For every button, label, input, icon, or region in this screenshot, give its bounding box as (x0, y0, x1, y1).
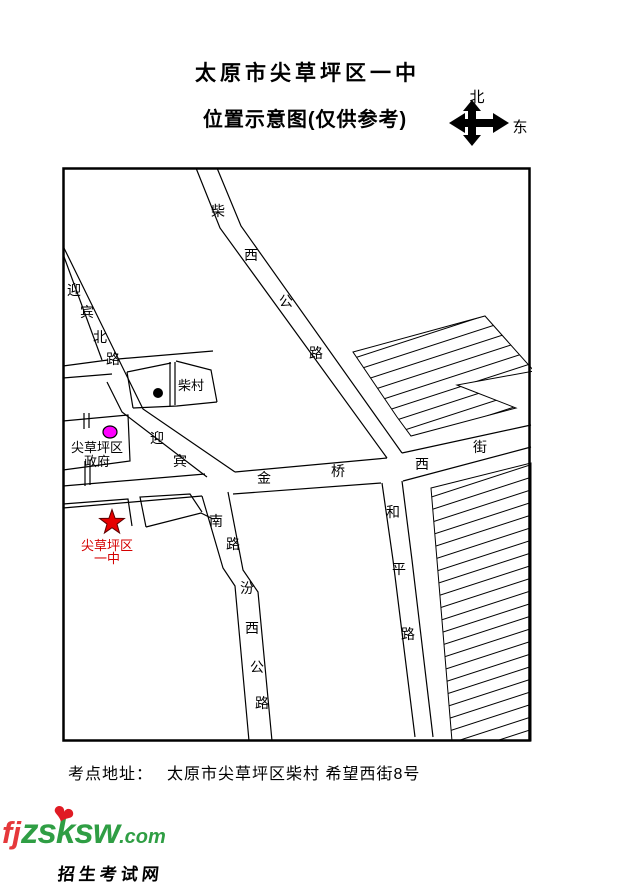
village-dot-marker (153, 388, 163, 398)
school-label-line2: 一中 (94, 551, 120, 566)
government-dot-marker (103, 426, 117, 438)
road-label-char: 迎 (150, 430, 164, 446)
road-west-spur (63, 360, 108, 366)
compass-rose-icon (449, 100, 509, 146)
road-label-char: 公 (279, 293, 293, 309)
road-label-char: 北 (93, 329, 107, 345)
road-label-char: 路 (401, 626, 415, 642)
road-label-char: 迎 (67, 282, 81, 298)
village-block (127, 372, 133, 408)
road-label-char: 路 (226, 536, 240, 552)
village-road (118, 351, 213, 359)
road-label-char: 路 (106, 351, 120, 367)
road-yingbin-north (63, 246, 235, 472)
road-label-char: 西 (245, 620, 259, 636)
school-block (146, 513, 213, 527)
road-label-char: 西 (415, 456, 429, 472)
road-label-char: 和 (386, 504, 400, 520)
compass-east-label: 东 (512, 119, 527, 136)
road-label-char: 路 (255, 695, 269, 711)
government-label-line2: 政府 (84, 454, 110, 469)
school-star-marker (100, 510, 125, 534)
watermark-suffix: .com (119, 826, 166, 848)
road-label-char: 金 (257, 470, 271, 486)
address-label: 考点地址： (68, 766, 153, 783)
hatched-area-northeast (353, 316, 532, 436)
village-label: 柴村 (178, 378, 204, 393)
watermark-logo: fjzsksw.com ❤ 招生考试网 (2, 812, 222, 886)
road-heping (382, 483, 415, 737)
road-label-char: 公 (250, 659, 264, 675)
compass: 北 东 (440, 82, 560, 157)
watermark-site-name: fjzsksw.com ❤ (2, 812, 222, 858)
road-label-char: 桥 (331, 463, 345, 479)
road-label-char: 平 (392, 561, 406, 577)
watermark-caption: 招生考试网 (57, 860, 224, 885)
map-svg: 柴村 尖草坪区 政府 尖草坪区 一中 柴西公路迎宾北路迎宾金桥西街南路汾西公路和… (62, 167, 532, 744)
road-label-char: 柴 (211, 203, 225, 219)
watermark-prefix: fj (2, 815, 21, 850)
road-fenxi-highway (202, 496, 249, 741)
village-block (127, 363, 171, 372)
road-jinqiao-west-street (63, 474, 205, 486)
road-label-char: 路 (309, 345, 323, 361)
hatched-area-southeast (431, 463, 531, 741)
road-label-char: 宾 (80, 304, 94, 320)
government-label-line1: 尖草坪区 (71, 440, 123, 455)
road-label-char: 街 (473, 439, 487, 455)
road-heping (402, 481, 433, 737)
road-label-char: 西 (244, 247, 258, 263)
road-chaixi-highway (217, 168, 402, 453)
road-jinqiao-west-street (233, 483, 381, 494)
address-value: 太原市尖草坪区柴村 希望西街8号 (167, 766, 420, 783)
road-label-char: 宾 (173, 453, 187, 469)
road-label-char: 南 (209, 513, 223, 529)
road-label-char: 汾 (240, 580, 254, 596)
road-west-spur (63, 374, 112, 378)
address-line: 考点地址：太原市尖草坪区柴村 希望西街8号 (68, 760, 420, 784)
